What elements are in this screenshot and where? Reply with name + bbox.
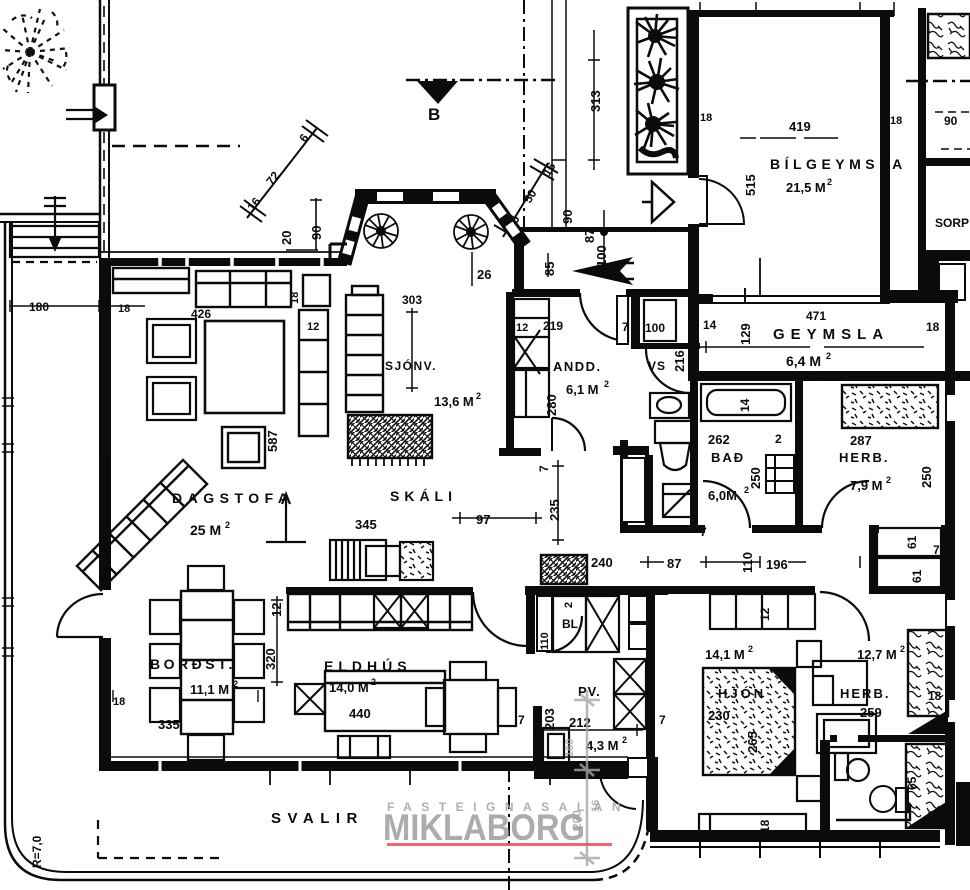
svg-text:HJÓN: HJÓN [718,686,766,701]
svg-text:MIKLABORG: MIKLABORG [383,807,585,848]
svg-text:2: 2 [476,391,481,401]
svg-text:BORÐST.: BORÐST. [150,656,236,672]
svg-text:SJÓNV.: SJÓNV. [385,358,437,373]
svg-text:219: 219 [543,319,563,333]
svg-text:12: 12 [307,321,319,333]
svg-text:7: 7 [622,320,629,334]
svg-text:440: 440 [349,706,371,721]
svg-text:2: 2 [827,177,832,187]
svg-text:14,0 M: 14,0 M [329,680,369,695]
svg-text:259: 259 [860,705,882,720]
svg-text:7,9 M: 7,9 M [850,478,883,493]
svg-text:419: 419 [789,119,811,134]
svg-text:87: 87 [582,229,597,243]
svg-text:2: 2 [563,602,575,608]
svg-text:HERB.: HERB. [839,450,889,465]
svg-text:26: 26 [477,267,491,282]
svg-text:6,0M: 6,0M [708,488,737,503]
svg-text:313: 313 [588,90,603,112]
svg-text:GEYMSLA: GEYMSLA [773,326,889,343]
svg-text:14: 14 [703,318,717,332]
svg-text:13,6 M: 13,6 M [434,394,474,409]
svg-text:320: 320 [263,648,278,670]
svg-text:345: 345 [355,517,377,532]
svg-text:335: 335 [158,717,180,732]
svg-text:7: 7 [933,543,940,557]
svg-text:587: 587 [265,430,280,452]
svg-text:515: 515 [743,174,758,196]
svg-text:303: 303 [402,293,422,307]
svg-text:2: 2 [815,371,821,383]
svg-text:6,4 M: 6,4 M [786,353,821,369]
svg-text:90: 90 [560,210,575,224]
svg-text:129: 129 [738,323,753,345]
svg-text:HERB.: HERB. [840,686,890,701]
svg-text:180: 180 [29,300,49,314]
svg-text:265: 265 [745,731,760,753]
svg-text:BAÐ: BAÐ [711,450,745,465]
svg-text:BÍLGEYMSLA: BÍLGEYMSLA [770,156,907,172]
svg-text:DAGSTOFA: DAGSTOFA [172,490,294,506]
svg-text:216: 216 [672,350,687,372]
svg-text:160: 160 [564,739,576,757]
svg-text:ELDHÚS: ELDHÚS [324,657,412,674]
svg-text:287: 287 [850,433,872,448]
svg-text:230: 230 [708,708,730,723]
svg-text:7: 7 [659,713,666,727]
svg-text:426: 426 [191,307,211,321]
svg-text:110: 110 [539,632,551,650]
svg-text:6,1 M: 6,1 M [566,382,599,397]
svg-text:2: 2 [826,351,831,361]
svg-text:2: 2 [225,520,230,530]
svg-text:235: 235 [547,499,562,521]
svg-text:2: 2 [900,644,905,654]
svg-text:2: 2 [748,644,753,654]
svg-text:7: 7 [700,525,707,539]
svg-text:BL: BL [562,617,578,631]
svg-text:2: 2 [775,432,782,446]
svg-text:18: 18 [890,115,902,127]
svg-text:90: 90 [309,226,324,240]
svg-text:21,5 M: 21,5 M [786,180,826,195]
svg-text:18: 18 [758,819,772,833]
svg-text:471: 471 [806,309,826,323]
svg-text:100: 100 [645,321,665,335]
svg-text:262: 262 [708,432,730,447]
svg-text:VS: VS [648,359,666,373]
svg-text:250: 250 [919,466,934,488]
svg-text:100: 100 [594,245,609,267]
svg-text:2: 2 [886,475,891,485]
svg-text:2: 2 [233,679,238,689]
svg-text:7: 7 [518,713,525,727]
svg-text:18: 18 [700,112,712,124]
svg-text:B: B [428,105,440,124]
svg-text:18: 18 [118,303,130,315]
svg-text:20: 20 [279,231,294,245]
svg-text:14: 14 [738,398,752,412]
svg-text:18: 18 [928,689,942,703]
svg-text:18: 18 [289,292,301,304]
svg-text:12,7 M: 12,7 M [857,647,897,662]
svg-text:11,1 M: 11,1 M [190,682,229,697]
svg-text:280: 280 [544,394,559,416]
svg-text:2: 2 [371,677,376,687]
svg-text:18: 18 [926,320,940,334]
svg-text:240: 240 [591,555,613,570]
svg-text:4,3 M: 4,3 M [586,738,619,753]
svg-text:2: 2 [622,735,627,745]
svg-text:90: 90 [944,114,958,128]
svg-text:2: 2 [604,379,609,389]
svg-text:87: 87 [667,556,681,571]
svg-text:61: 61 [905,535,919,549]
svg-text:203: 203 [542,708,557,730]
svg-text:SORP: SORP [935,216,969,230]
svg-text:18: 18 [113,696,125,708]
svg-text:196: 196 [766,557,788,572]
svg-text:14,1 M: 14,1 M [705,647,745,662]
svg-text:250: 250 [748,467,763,489]
svg-text:ANDD.: ANDD. [553,359,602,374]
svg-text:12: 12 [516,322,528,334]
svg-text:97: 97 [476,512,490,527]
svg-text:7: 7 [537,465,551,472]
svg-text:R=7,0: R=7,0 [30,835,44,868]
svg-text:7: 7 [691,283,698,297]
svg-text:25 M: 25 M [190,522,221,538]
svg-text:SKÁLI: SKÁLI [390,488,457,504]
svg-text:12: 12 [758,607,772,621]
svg-text:SVALIR: SVALIR [271,810,364,827]
svg-text:61: 61 [910,569,924,583]
svg-text:85: 85 [542,262,557,276]
